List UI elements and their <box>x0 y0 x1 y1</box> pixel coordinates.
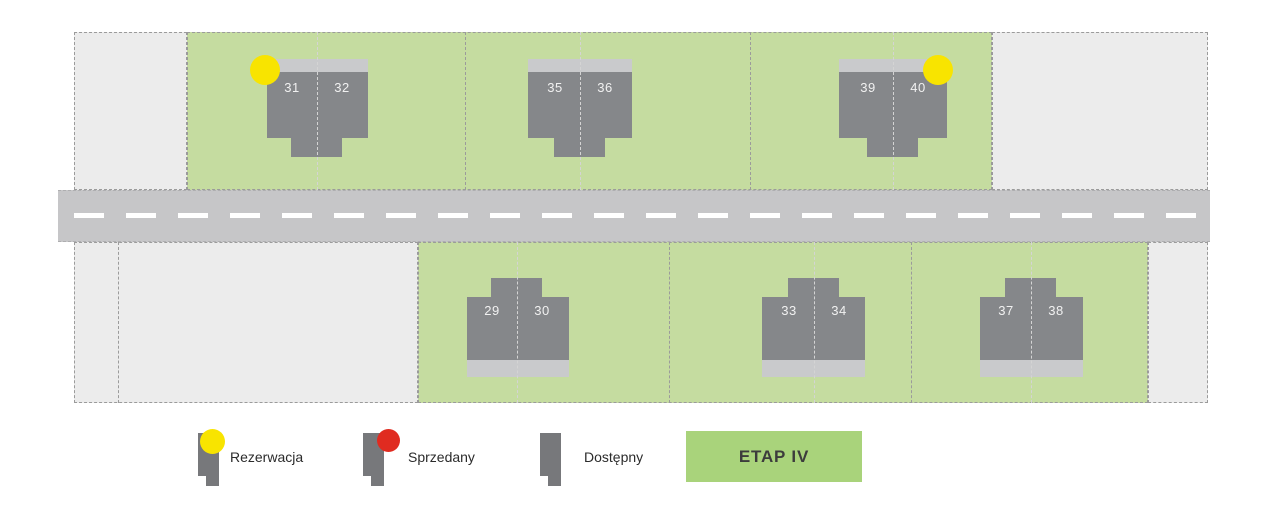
house-unit-38[interactable] <box>1031 278 1083 377</box>
stage-badge: ETAP IV <box>686 431 862 482</box>
plot-boundary-divider <box>669 242 670 403</box>
house-unit-31[interactable] <box>267 59 317 157</box>
plot-area-outside <box>74 242 418 403</box>
legend-label-rezerwacja: Rezerwacja <box>230 449 303 465</box>
stage-label: ETAP IV <box>739 447 809 466</box>
legend-label-dostepny: Dostępny <box>584 449 643 465</box>
house-unit-33[interactable] <box>762 278 814 377</box>
house-unit-35[interactable] <box>528 59 580 157</box>
sold-marker <box>377 429 400 452</box>
house-unit-39[interactable] <box>839 59 893 157</box>
house-unit-37[interactable] <box>980 278 1031 377</box>
road-center-line <box>74 213 1208 218</box>
plot-area-outside <box>74 32 187 190</box>
plot-boundary-divider <box>911 242 912 403</box>
legend-label-sprzedany: Sprzedany <box>408 449 475 465</box>
house-icon <box>540 433 562 486</box>
house-unit-40[interactable] <box>893 59 947 157</box>
plot-boundary-divider <box>750 32 751 190</box>
house-unit-29[interactable] <box>467 278 517 377</box>
plot-area-outside <box>1148 242 1208 403</box>
reservation-marker <box>200 429 225 454</box>
house-unit-30[interactable] <box>517 278 569 377</box>
house-unit-34[interactable] <box>814 278 865 377</box>
plot-area-outside <box>992 32 1208 190</box>
estate-plan-canvas: 313235363940293033343738 Rezerwacja Sprz… <box>0 0 1280 515</box>
house-unit-32[interactable] <box>317 59 368 157</box>
house-unit-36[interactable] <box>580 59 632 157</box>
plot-boundary-divider <box>465 32 466 190</box>
plot-boundary-divider <box>118 242 119 403</box>
